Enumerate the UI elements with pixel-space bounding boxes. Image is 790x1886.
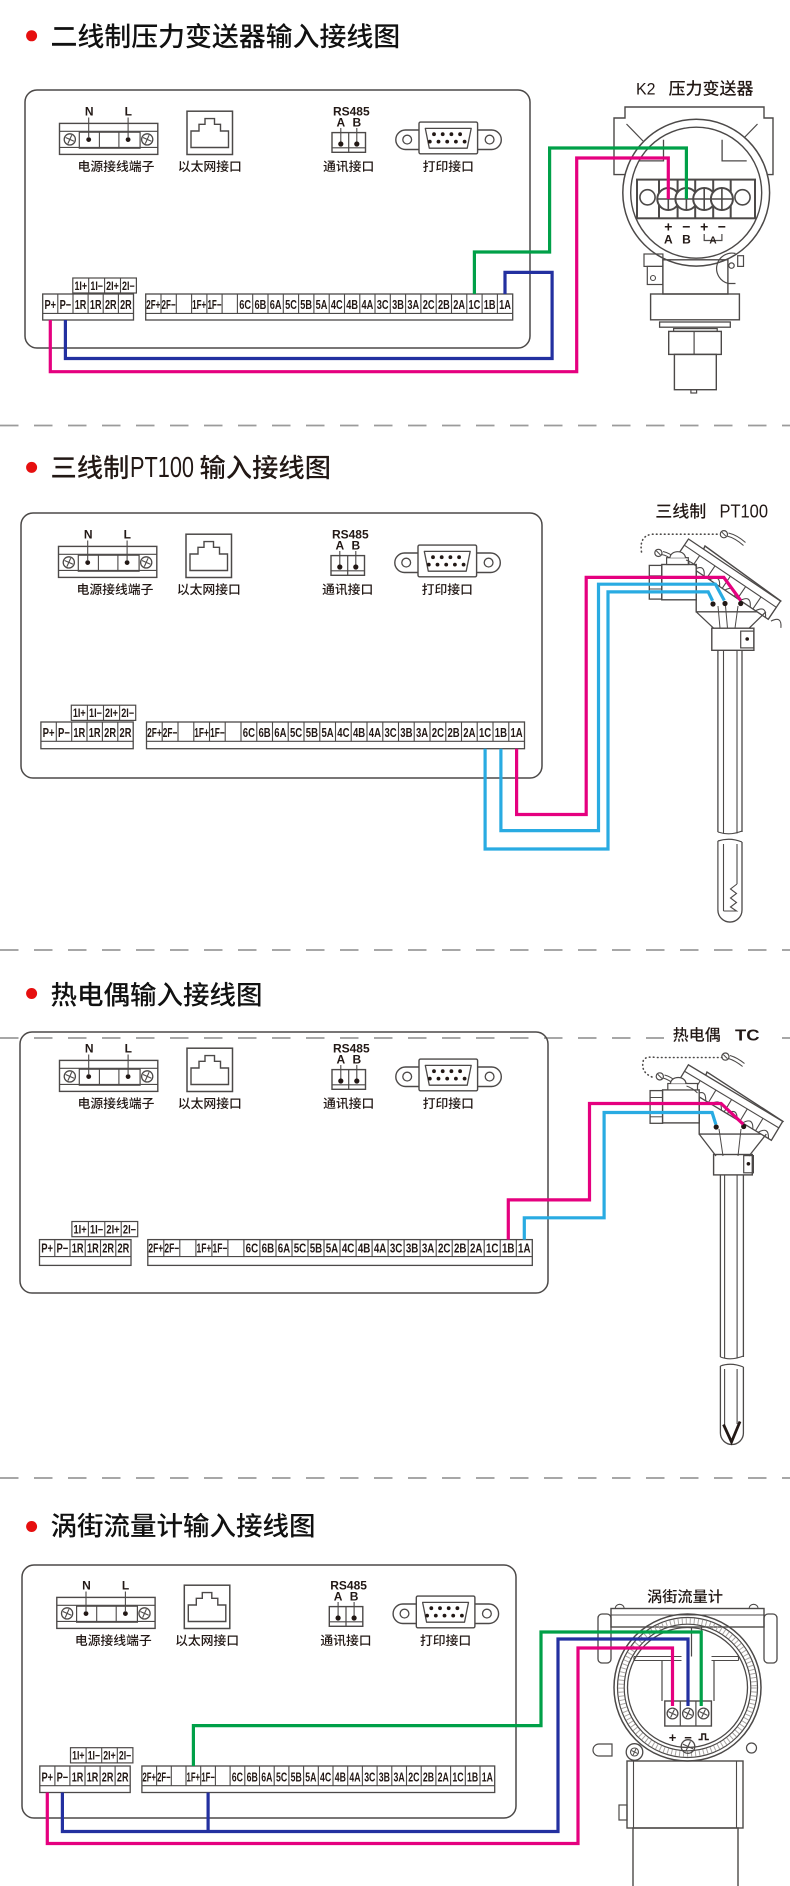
svg-text:2A: 2A [453, 298, 465, 312]
svg-text:1B: 1B [484, 298, 496, 312]
svg-text:L: L [124, 528, 131, 542]
svg-text:1I+: 1I+ [74, 281, 87, 293]
svg-text:2F−: 2F− [163, 726, 178, 740]
svg-text:3A: 3A [422, 1241, 435, 1255]
svg-text:1R: 1R [87, 1771, 99, 1785]
svg-text:P−: P− [60, 298, 72, 312]
svg-text:A: A [664, 233, 673, 247]
svg-text:3B: 3B [379, 1771, 390, 1785]
svg-text:5A: 5A [322, 726, 334, 740]
svg-text:A: A [336, 116, 345, 130]
svg-text:B: B [352, 116, 361, 130]
svg-text:B: B [350, 1590, 359, 1604]
svg-text:P−: P− [57, 1241, 69, 1255]
svg-text:P−: P− [57, 1771, 69, 1785]
svg-text:4B: 4B [335, 1771, 346, 1785]
svg-text:2I−: 2I− [121, 708, 134, 720]
svg-text:5B: 5B [306, 726, 318, 740]
svg-text:2B: 2B [454, 1241, 467, 1255]
svg-text:2F−: 2F− [164, 1241, 179, 1255]
svg-text:6B: 6B [247, 1771, 258, 1785]
svg-text:1C: 1C [479, 726, 491, 740]
svg-text:4A: 4A [374, 1241, 387, 1255]
svg-text:2C: 2C [423, 298, 435, 312]
svg-text:2A: 2A [438, 1771, 449, 1785]
svg-text:6A: 6A [261, 1771, 272, 1785]
svg-text:5C: 5C [285, 298, 297, 312]
svg-text:5B: 5B [310, 1241, 323, 1255]
svg-text:2I+: 2I+ [105, 708, 118, 720]
svg-text:6A: 6A [270, 298, 282, 312]
svg-text:4A: 4A [369, 726, 381, 740]
svg-text:1R: 1R [87, 1241, 99, 1255]
svg-text:4B: 4B [353, 726, 365, 740]
svg-text:6A: 6A [278, 1241, 291, 1255]
svg-text:2R: 2R [117, 1771, 129, 1785]
svg-text:5B: 5B [300, 298, 312, 312]
svg-text:1R: 1R [72, 1771, 84, 1785]
svg-text:1I+: 1I+ [73, 708, 86, 720]
svg-text:P+: P+ [41, 1241, 53, 1255]
svg-text:1I−: 1I− [90, 281, 103, 293]
svg-text:P+: P+ [45, 298, 57, 312]
svg-text:6A: 6A [274, 726, 286, 740]
svg-text:2A: 2A [463, 726, 475, 740]
svg-text:4C: 4C [342, 1241, 355, 1255]
svg-text:1C: 1C [469, 298, 481, 312]
svg-text:A: A [335, 539, 344, 553]
svg-text:3A: 3A [416, 726, 428, 740]
svg-text:N: N [82, 1579, 91, 1593]
svg-text:K2: K2 [636, 80, 656, 99]
svg-text:N: N [85, 1042, 94, 1056]
svg-text:5A: 5A [305, 1771, 316, 1785]
svg-text:4A: 4A [349, 1771, 360, 1785]
svg-text:2R: 2R [102, 1241, 114, 1255]
svg-text:2R: 2R [118, 1241, 130, 1255]
svg-text:4A: 4A [362, 298, 374, 312]
svg-text:P−: P− [58, 726, 70, 740]
svg-text:2F−: 2F− [162, 298, 176, 312]
svg-text:6C: 6C [232, 1771, 243, 1785]
svg-text:L: L [125, 105, 132, 119]
svg-text:A: A [336, 1053, 345, 1067]
svg-text:3A: 3A [407, 298, 419, 312]
svg-text:2B: 2B [423, 1771, 434, 1785]
svg-text:1R: 1R [75, 298, 87, 312]
svg-text:N: N [84, 528, 93, 542]
svg-text:2R: 2R [102, 1771, 114, 1785]
svg-text:1F−: 1F− [207, 298, 221, 312]
svg-text:4B: 4B [346, 298, 358, 312]
svg-text:1B: 1B [495, 726, 507, 740]
svg-text:2I+: 2I+ [103, 1751, 116, 1763]
svg-text:2I−: 2I− [123, 1225, 136, 1237]
svg-text:P+: P+ [42, 1771, 54, 1785]
svg-text:5A: 5A [316, 298, 328, 312]
svg-text:1A: 1A [518, 1241, 531, 1255]
svg-text:2F+: 2F+ [147, 726, 162, 740]
svg-text:1F+: 1F+ [187, 1771, 201, 1785]
svg-text:B: B [682, 233, 691, 247]
svg-text:1A: 1A [482, 1771, 493, 1785]
svg-text:1R: 1R [72, 1241, 84, 1255]
svg-text:N: N [85, 105, 94, 119]
svg-text:3C: 3C [385, 726, 397, 740]
svg-text:1C: 1C [486, 1241, 499, 1255]
svg-text:1I+: 1I+ [74, 1225, 87, 1237]
svg-text:6B: 6B [255, 298, 267, 312]
svg-text:1F+: 1F+ [192, 298, 206, 312]
svg-text:3A: 3A [394, 1771, 405, 1785]
svg-text:3B: 3B [392, 298, 404, 312]
svg-text:2R: 2R [105, 298, 117, 312]
svg-text:5A: 5A [326, 1241, 339, 1255]
svg-text:1R: 1R [73, 726, 85, 740]
svg-text:2B: 2B [448, 726, 460, 740]
svg-text:+: + [700, 219, 708, 235]
svg-text:1F+: 1F+ [194, 726, 209, 740]
svg-text:6B: 6B [262, 1241, 275, 1255]
svg-text:A: A [334, 1590, 343, 1604]
svg-text:2A: 2A [470, 1241, 483, 1255]
svg-text:1F−: 1F− [210, 726, 225, 740]
svg-text:1I−: 1I− [90, 1225, 103, 1237]
svg-text:+: + [669, 1730, 677, 1745]
svg-text:3C: 3C [364, 1771, 375, 1785]
svg-text:1A: 1A [499, 298, 511, 312]
svg-text:5C: 5C [294, 1241, 307, 1255]
svg-text:1I−: 1I− [89, 708, 102, 720]
svg-text:2C: 2C [408, 1771, 419, 1785]
svg-text:2R: 2R [120, 298, 132, 312]
svg-text:L: L [125, 1042, 132, 1056]
svg-text:5C: 5C [290, 726, 302, 740]
svg-text:2I−: 2I− [119, 1751, 132, 1763]
svg-text:2I+: 2I+ [106, 281, 119, 293]
svg-text:1C: 1C [452, 1771, 463, 1785]
svg-text:1A: 1A [511, 726, 523, 740]
svg-text:L: L [122, 1579, 129, 1593]
svg-text:PT100: PT100 [130, 452, 194, 484]
svg-text:A: A [709, 236, 716, 247]
svg-text:2F+: 2F+ [148, 1241, 163, 1255]
svg-text:4C: 4C [320, 1771, 331, 1785]
svg-text:1R: 1R [89, 726, 101, 740]
svg-text:2C: 2C [432, 726, 444, 740]
svg-text:1F−: 1F− [201, 1771, 215, 1785]
svg-text:P+: P+ [43, 726, 55, 740]
svg-text:2F+: 2F+ [146, 298, 160, 312]
svg-text:TC: TC [735, 1028, 760, 1045]
svg-text:4C: 4C [337, 726, 349, 740]
svg-text:6C: 6C [243, 726, 255, 740]
svg-text:1B: 1B [502, 1241, 515, 1255]
svg-text:3B: 3B [406, 1241, 419, 1255]
svg-text:B: B [351, 539, 360, 553]
svg-text:6B: 6B [259, 726, 271, 740]
svg-text:1F−: 1F− [213, 1241, 228, 1255]
svg-text:5C: 5C [276, 1771, 287, 1785]
svg-text:3B: 3B [400, 726, 412, 740]
svg-text:1R: 1R [90, 298, 102, 312]
svg-text:1I+: 1I+ [72, 1751, 85, 1763]
svg-text:3C: 3C [390, 1241, 403, 1255]
svg-text:2R: 2R [120, 726, 132, 740]
svg-text:PT100: PT100 [720, 500, 769, 521]
svg-text:2F+: 2F+ [142, 1771, 156, 1785]
svg-text:4C: 4C [331, 298, 343, 312]
svg-text:1B: 1B [467, 1771, 478, 1785]
svg-text:B: B [352, 1053, 361, 1067]
svg-text:2C: 2C [438, 1241, 451, 1255]
svg-text:6C: 6C [246, 1241, 259, 1255]
svg-text:2I+: 2I+ [106, 1225, 119, 1237]
svg-text:5B: 5B [291, 1771, 302, 1785]
svg-text:6C: 6C [239, 298, 251, 312]
svg-text:1F+: 1F+ [197, 1241, 212, 1255]
svg-text:2I−: 2I− [122, 281, 135, 293]
svg-text:2B: 2B [438, 298, 450, 312]
svg-text:4B: 4B [358, 1241, 371, 1255]
svg-text:2R: 2R [104, 726, 116, 740]
svg-text:1I−: 1I− [88, 1751, 101, 1763]
svg-text:2F−: 2F− [157, 1771, 171, 1785]
svg-text:3C: 3C [377, 298, 389, 312]
svg-text:−: − [718, 219, 726, 235]
svg-text:−: − [684, 1730, 692, 1745]
